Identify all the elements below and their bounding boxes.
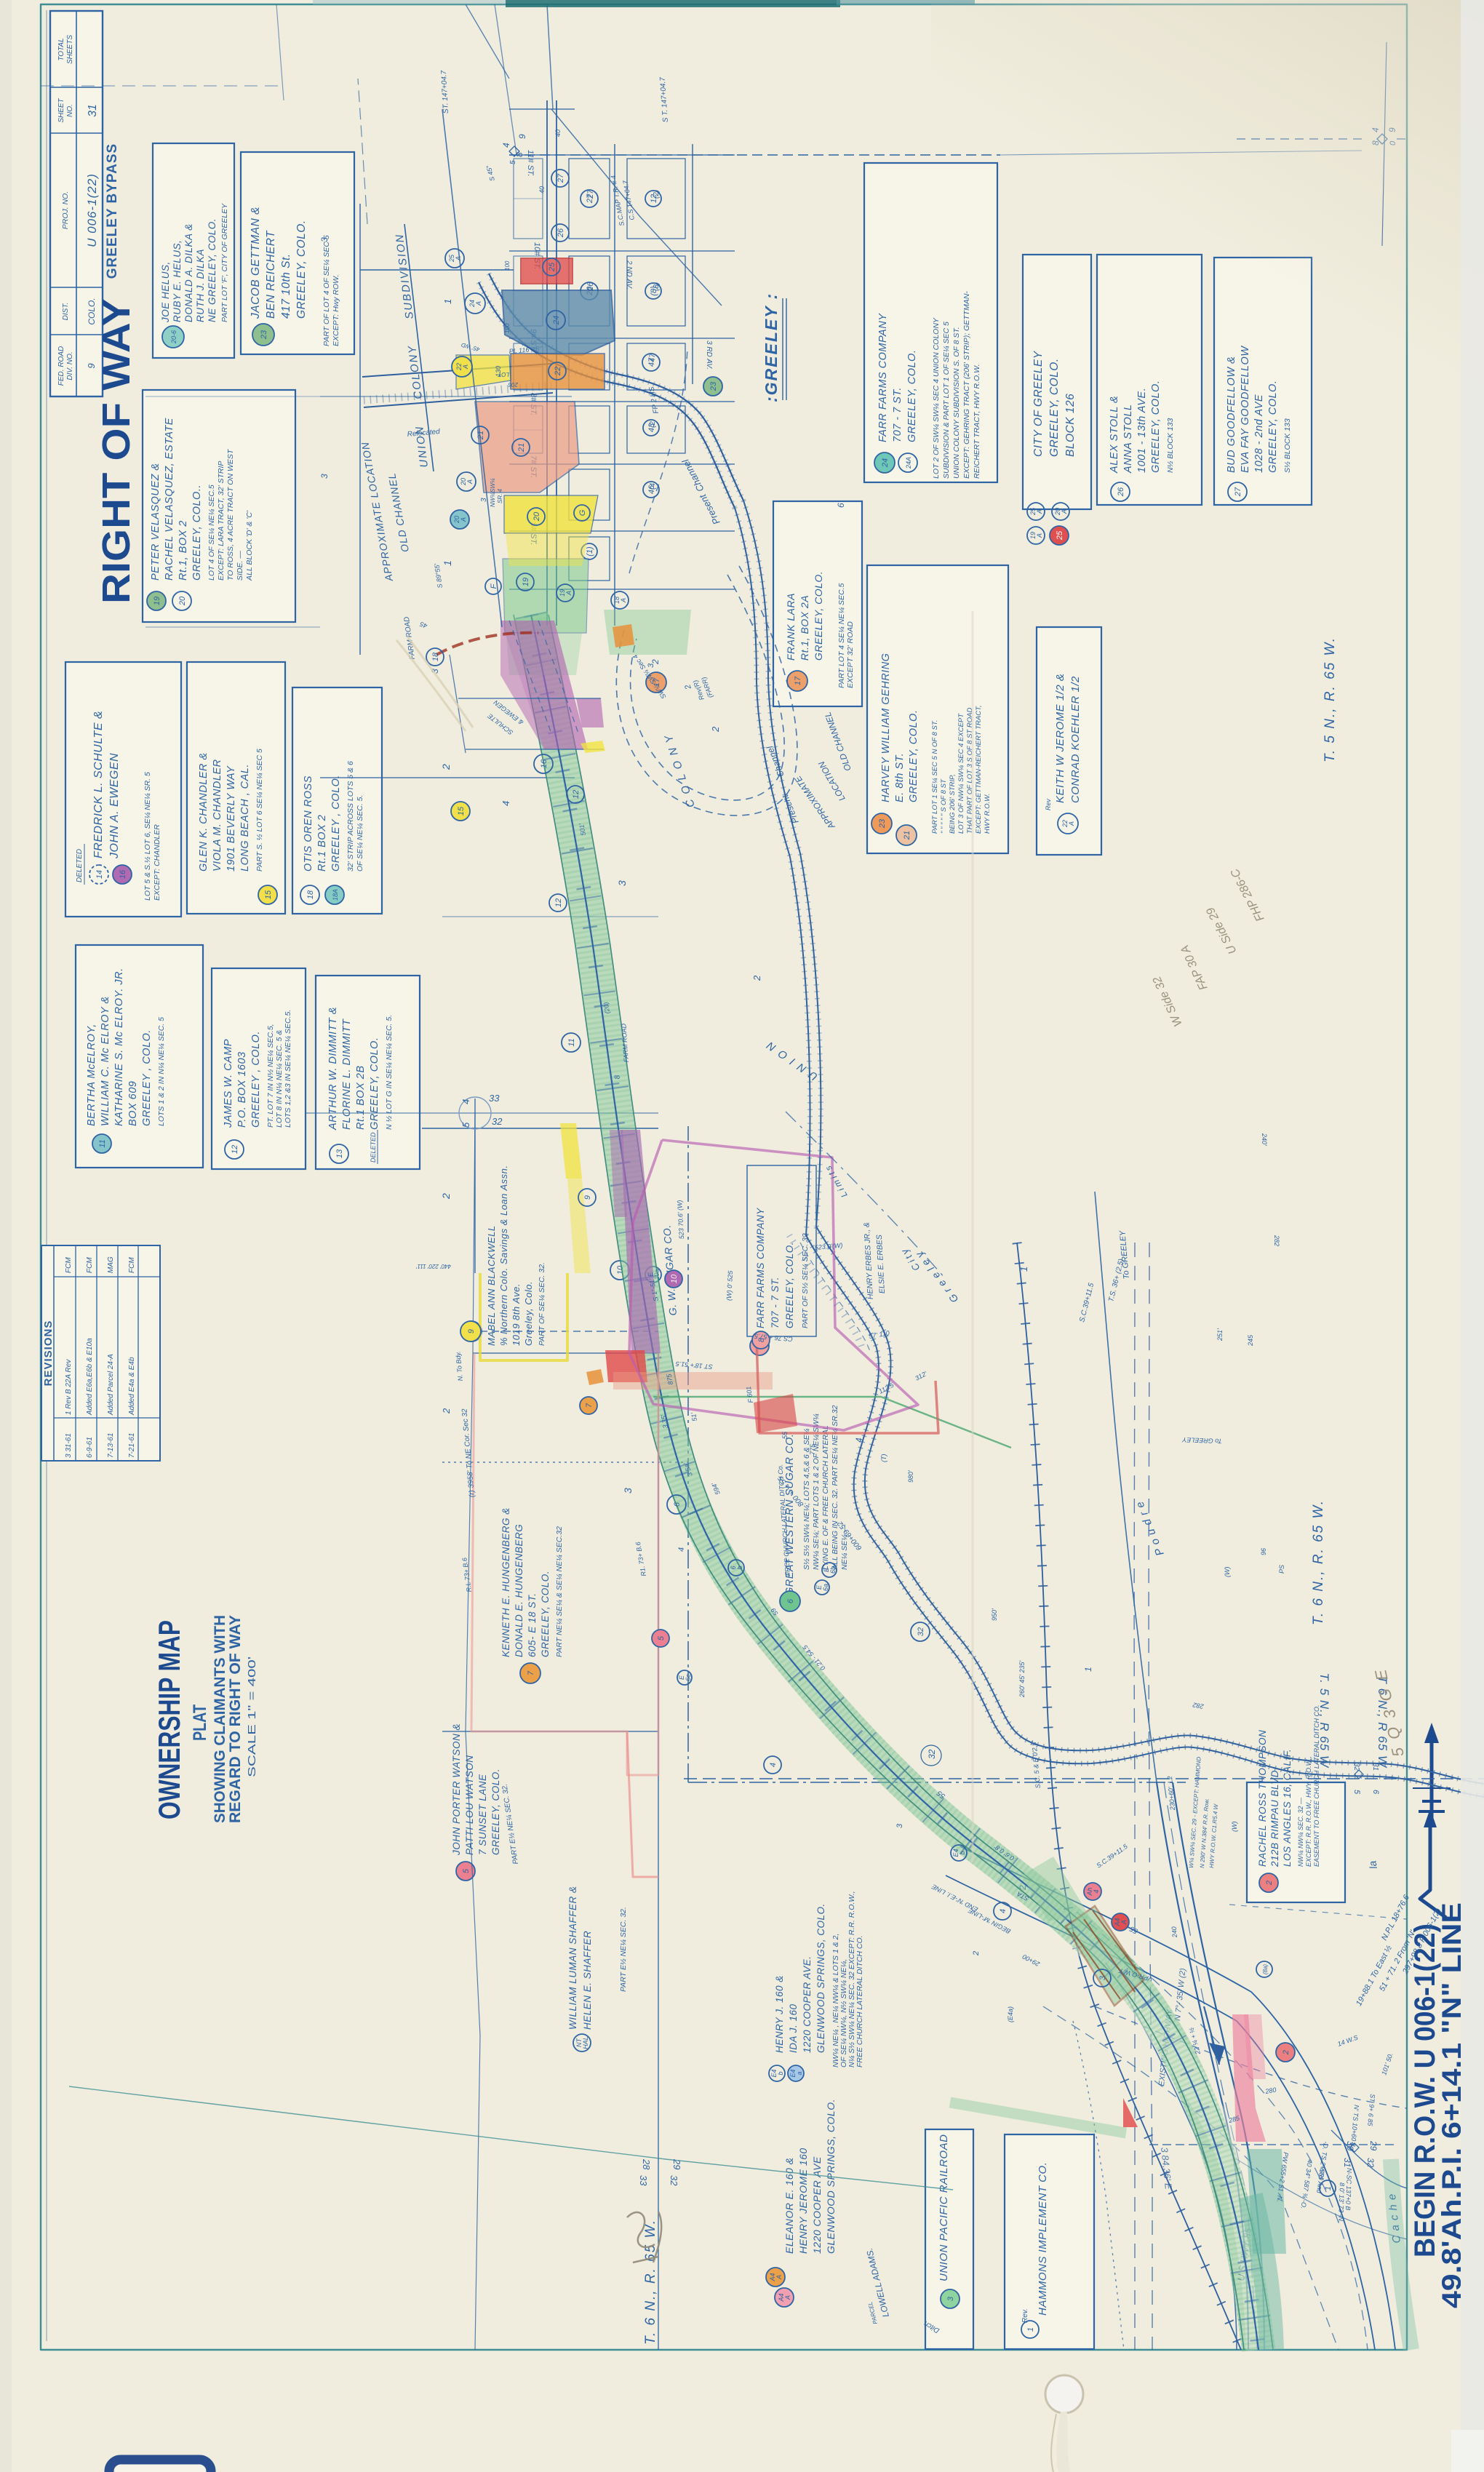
svg-text:9: 9 [517,134,527,139]
svg-text:33: 33 [638,2175,649,2186]
svg-text:NW¼ NW¼ SEC. 32 —: NW¼ NW¼ SEC. 32 — [1297,1797,1304,1867]
svg-text:15: 15 [264,890,273,899]
svg-text:32: 32 [1365,2158,1376,2168]
svg-text:20: 20 [178,596,187,606]
svg-text:PROJ. NO.: PROJ. NO. [61,191,70,230]
svg-text:GREELEY, COLO..: GREELEY, COLO.. [191,485,203,581]
svg-text:SHEETS: SHEETS [66,35,74,64]
svg-text:21: 21 [476,431,485,440]
svg-text:JOHN A. EWEGEN: JOHN A. EWEGEN [108,753,121,859]
svg-text:47: 47 [647,357,656,367]
svg-text:24: 24 [552,316,561,325]
svg-text:Rev: Rev [1045,798,1052,810]
svg-text:LOT 5 & S.½ LOT 6, SE¼ NE¼ SR.: LOT 5 & S.½ LOT 6, SE¼ NE¼ SR. 5 [143,772,152,901]
svg-text:1220 COOPER AVE.: 1220 COOPER AVE. [802,1955,813,2053]
svg-text:U 006-1(22): U 006-1(22) [85,173,99,247]
svg-text:Rt.1, BOX 2A: Rt.1, BOX 2A [799,595,810,661]
svg-text:27: 27 [586,194,594,204]
svg-text:HELEN E. SHAFFER: HELEN E. SHAFFER [582,1931,593,2030]
svg-text:18: 18 [431,652,440,661]
svg-text:980': 980' [907,1470,914,1483]
svg-text:206: 206 [508,381,519,388]
svg-text:2: 2 [1265,1881,1274,1886]
svg-text:4: 4 [460,1099,471,1104]
svg-text:5: 5 [657,1635,666,1640]
svg-text:GREELEY, COLO.: GREELEY, COLO. [490,1769,501,1855]
svg-text:(1): (1) [586,546,594,557]
svg-text:6: 6 [673,1502,682,1507]
svg-text:KEITH W JEROME 1/2 &: KEITH W JEROME 1/2 & [1054,674,1066,803]
svg-text:NW¼SW¼: NW¼SW¼ [490,478,496,507]
svg-text:26: 26 [1117,487,1125,497]
svg-text:SR. 4: SR. 4 [497,488,503,503]
svg-text:20: 20 [532,511,541,522]
svg-text:5: 5 [462,1868,471,1873]
svg-text:43: 43 [647,423,656,432]
svg-text:GLEN K. CHANDLER &: GLEN K. CHANDLER & [198,752,210,872]
svg-text:1: 1 [442,299,453,304]
svg-text:SHOWING CLAIMANTS WITH: SHOWING CLAIMANTS WITH [212,1615,228,1823]
svg-text:WILLIAM LUMAN SHAFFER &: WILLIAM LUMAN SHAFFER & [567,1886,578,2030]
svg-text:A: A [455,256,462,261]
svg-text:NE GREELEY, COLO.: NE GREELEY, COLO. [207,218,218,322]
svg-text:TO ROSS, 4 ACRE TRACT ON WEST: TO ROSS, 4 ACRE TRACT ON WEST [226,448,235,581]
svg-text:A: A [1068,821,1075,826]
svg-text:PART LOT 4 SE¼ NE¼ SEC.5: PART LOT 4 SE¼ NE¼ SEC.5 [837,583,846,688]
svg-text:3: 3 [319,237,330,242]
svg-text:251': 251' [1216,1328,1224,1341]
svg-text:32: 32 [1352,1763,1360,1771]
svg-text:REVISIONS: REVISIONS [42,1320,55,1387]
svg-text:6a: 6a [822,1584,829,1591]
svg-text:NW¼ SE¼; PART LOTS 1 & 2 OF NE: NW¼ SE¼; PART LOTS 1 & 2 OF NE¼ SW¼ [812,1414,821,1570]
svg-text:EXCEPT: GETTMAN-REICHERT TRACT: EXCEPT: GETTMAN-REICHERT TRACT, [975,705,983,834]
svg-text:11: 11 [567,1038,576,1046]
svg-text:HENRY J. 160 &: HENRY J. 160 & [774,1975,785,2053]
svg-text:PART LOT 'F', CITY OF GREELEY: PART LOT 'F', CITY OF GREELEY [220,203,229,322]
svg-text:100: 100 [504,260,511,271]
svg-text:10: 10 [670,1274,679,1283]
svg-text:b: b [959,1851,966,1854]
svg-text:EXCEPT: Hwy ROW.: EXCEPT: Hwy ROW. [332,274,340,346]
svg-text:N½ BLOCK 133: N½ BLOCK 133 [1166,418,1175,473]
svg-text:6c: 6c [685,1674,692,1681]
svg-text:FCM: FCM [65,1257,73,1273]
svg-text:32: 32 [917,1627,925,1636]
svg-text:T. 5 N., R. 65 W.: T. 5 N., R. 65 W. [1323,637,1338,762]
svg-text:b: b [736,1566,743,1569]
svg-text:DELETED: DELETED [370,1132,377,1163]
svg-text:PART E½ NE¼ SEC. 32.: PART E½ NE¼ SEC. 32. [619,1907,628,1992]
svg-text:12: 12 [572,790,581,799]
svg-text:212B RIMPAU BLVD.: 212B RIMPAU BLVD. [1269,1767,1280,1867]
svg-text:HAL: HAL [582,2036,589,2049]
svg-text:(T): (T) [880,1454,887,1463]
svg-text:5: 5 [460,1122,471,1128]
svg-text:Added E4a & E4b: Added E4a & E4b [128,1357,136,1416]
svg-text:28: 28 [641,2158,652,2170]
svg-text:OWNERSHIP MAP: OWNERSHIP MAP [152,1620,186,1819]
svg-text:To GREELEY: To GREELEY [1181,1436,1222,1445]
svg-text:13: 13 [335,1149,344,1158]
svg-text:G: G [578,509,587,516]
svg-text:" " " " " S OF 8 ST: " " " " " S OF 8 ST [940,778,948,834]
svg-text:A: A [1061,509,1068,514]
svg-text:LOT: LOT [497,371,509,378]
svg-text:T. 5 N., R 65 W: T. 5 N., R 65 W [1317,1672,1331,1769]
svg-text:PETER VELASQUEZ &: PETER VELASQUEZ & [150,463,161,581]
svg-text::GREELEY :: :GREELEY : [762,292,781,402]
svg-text:25: 25 [548,262,556,272]
svg-text:HWY R.O.W.: HWY R.O.W. [984,794,992,834]
svg-text:2: 2 [710,726,721,733]
svg-text:GREELEY BYPASS: GREELEY BYPASS [105,143,120,279]
svg-text:9: 9 [467,1329,476,1333]
svg-text:REGARD TO RIGHT OF WAY: REGARD TO RIGHT OF WAY [227,1615,244,1823]
svg-text:BEING 206' STRIP,: BEING 206' STRIP, [949,774,957,834]
svg-text:2: 2 [440,764,452,770]
svg-text:JOE HELUS,: JOE HELUS, [160,261,171,323]
svg-text:6-9-61: 6-9-61 [86,1437,94,1458]
svg-text:LOS ANGLES 16, CALIF.: LOS ANGLES 16, CALIF. [1282,1749,1293,1867]
svg-text:NO.: NO. [66,104,74,117]
svg-text:ALL BLOCK 'D' & 'C': ALL BLOCK 'D' & 'C' [245,510,254,581]
svg-text:LOTS 1,2 &3 IN SE¼ NE¼ SEC.5.: LOTS 1,2 &3 IN SE¼ NE¼ SEC.5. [284,1010,292,1128]
svg-text:11: 11 [98,1139,107,1147]
svg-text:7: 7 [527,1670,535,1675]
svg-text:VIOLA M. CHANDLER: VIOLA M. CHANDLER [212,759,223,872]
svg-text:CONRAD KOEHLER 1/2: CONRAD KOEHLER 1/2 [1069,676,1082,803]
svg-text:40: 40 [538,186,546,194]
svg-text:18A: 18A [332,889,339,901]
svg-text:PT. LOT 7 IN N½ NE¼ SEC.5,: PT. LOT 7 IN N½ NE¼ SEC.5, [266,1024,275,1128]
svg-text:T. 6 N., R. 65 W.: T. 6 N., R. 65 W. [643,2219,658,2345]
svg-text:LOTS 1 & 2 IN N¼ NE¼ SEC. 5: LOTS 1 & 2 IN N¼ NE¼ SEC. 5 [157,1017,166,1126]
svg-text:JAMES W. CAMP: JAMES W. CAMP [223,1039,234,1128]
svg-text:33: 33 [489,1093,500,1104]
svg-text:FREE CHURCH LATERAL DITCH CO.: FREE CHURCH LATERAL DITCH CO. [855,1935,864,2068]
svg-text:PART OF S½ SE¼ SEC. 32: PART OF S½ SE¼ SEC. 32 [801,1233,810,1328]
svg-text:Added E6a,E6b & E10a: Added E6a,E6b & E10a [86,1338,94,1416]
svg-text:1: 1 [1083,1667,1093,1672]
svg-text:16: 16 [540,759,548,768]
svg-text:(W): (W) [1231,1822,1238,1833]
svg-text:WILLIAM C. Mc ELROY &: WILLIAM C. Mc ELROY & [100,996,111,1126]
svg-text:UNION PACIFIC RAILROAD: UNION PACIFIC RAILROAD [938,2134,950,2281]
svg-text:SIDE. —: SIDE. — [236,551,244,581]
svg-text:T. 6 N., R. 65 W.: T. 6 N., R. 65 W. [1311,1499,1326,1625]
svg-text:b: b [777,2071,784,2075]
svg-text:18: 18 [306,890,315,899]
svg-text:(E4a): (E4a) [1007,2006,1014,2022]
svg-text:A: A [565,591,573,596]
svg-text:PLAT: PLAT [190,1705,210,1741]
svg-text:707 - 7 ST.: 707 - 7 ST. [770,1277,781,1328]
svg-text:46: 46 [647,485,656,494]
svg-text:Rt.1 BOX 2B: Rt.1 BOX 2B [355,1065,367,1130]
svg-text:16: 16 [119,869,127,879]
svg-text:GREELEY, COLO.: GREELEY, COLO. [813,571,824,661]
svg-text:23: 23 [878,818,887,829]
svg-text:1220 COOPER AVE: 1220 COOPER AVE [811,2156,823,2254]
svg-text:14: 14 [95,870,104,879]
svg-text:GREELEY, COLO.: GREELEY, COLO. [369,1037,380,1130]
svg-text:25: 25 [1056,530,1064,541]
svg-text:a: a [796,2071,803,2075]
svg-text:21: 21 [517,443,526,452]
svg-text:6: 6 [786,1598,795,1603]
svg-text:3: 3 [616,880,628,886]
svg-text:Greeley, Colo.: Greeley, Colo. [523,1281,534,1346]
svg-text:4: 4 [769,1763,778,1767]
svg-text:HENRY JEROME 160: HENRY JEROME 160 [797,2148,809,2254]
svg-text:GREELEY , COLO.: GREELEY , COLO. [250,1031,262,1128]
svg-text:PART OF LOT 4 OF SE¼ SEC 5: PART OF LOT 4 OF SE¼ SEC 5 [322,235,331,346]
svg-text:19: 19 [522,578,530,586]
svg-text:FRANK LARA: FRANK LARA [785,593,797,661]
svg-text:DONALD E. HUNGENBERG: DONALD E. HUNGENBERG [514,1524,524,1657]
svg-text:KENNETH E. HUNGENBERG &: KENNETH E. HUNGENBERG & [500,1507,511,1657]
svg-text:3 31-61: 3 31-61 [65,1433,73,1458]
svg-text:7-21-61: 7-21-61 [128,1433,136,1458]
svg-text:27: 27 [1234,487,1242,497]
svg-text:282: 282 [1273,1235,1280,1246]
svg-text:29: 29 [671,2158,682,2169]
svg-text:P.O. BOX 1603: P.O. BOX 1603 [236,1051,248,1128]
svg-text:6: 6 [1371,1790,1380,1795]
svg-text:LOT 4 OF SE¼ NE¼ SEC.5: LOT 4 OF SE¼ NE¼ SEC.5 [207,485,216,581]
svg-text:DELETED: DELETED [76,849,84,882]
svg-text:PS: PS [1278,1565,1285,1574]
svg-text:3 RD AV.: 3 RD AV. [705,340,713,370]
svg-text:EXCEPT 32' ROAD: EXCEPT 32' ROAD [846,621,855,688]
svg-text:GREELEY, COLO.: GREELEY, COLO. [908,710,919,802]
svg-text:21: 21 [903,831,911,840]
svg-text:GREELEY, COLO.: GREELEY, COLO. [295,220,308,319]
svg-text:245: 245 [1247,1334,1254,1347]
svg-text:EXCEPT: LARA TRACT, 32' STRIP: EXCEPT: LARA TRACT, 32' STRIP [217,461,226,581]
svg-text:HAMMONS IMPLEMENT CO.: HAMMONS IMPLEMENT CO. [1037,2162,1049,2316]
svg-text:605- E 18 ST.: 605- E 18 ST. [527,1592,538,1657]
svg-text:440' 220' 111': 440' 220' 111' [416,1263,451,1269]
svg-text:MAG: MAG [107,1256,115,1273]
svg-text:6b: 6b [829,1566,837,1574]
svg-text:PART OF SE¼ SEC. 32.: PART OF SE¼ SEC. 32. [538,1262,546,1346]
svg-text:40: 40 [554,129,562,137]
svg-text:PATTI LOU WATSON: PATTI LOU WATSON [464,1755,475,1855]
svg-text:BEN REICHERT: BEN REICHERT [265,230,277,319]
svg-text:Rt.1 BOX 2: Rt.1 BOX 2 [316,815,328,872]
svg-text:4: 4 [501,143,511,148]
svg-text:3: 3 [1098,1975,1107,1980]
svg-text:S½ BLOCK 133: S½ BLOCK 133 [1283,418,1292,473]
svg-text:% Northern Colo. Savings & Loa: % Northern Colo. Savings & Loan Assn. [498,1165,509,1346]
svg-text:A: A [475,301,482,306]
svg-text:N ½ LOT G IN SE¼ NE¼ SEC. 5.: N ½ LOT G IN SE¼ NE¼ SEC. 5. [385,1015,394,1130]
svg-text:2: 2 [440,1193,452,1200]
svg-text:ARTHUR W. DIMMITT &: ARTHUR W. DIMMITT & [327,1007,339,1131]
svg-text:15: 15 [457,806,466,816]
svg-text:FCM: FCM [86,1257,94,1273]
svg-text:TOTAL: TOTAL [57,38,65,60]
svg-text:3: 3 [647,663,655,668]
svg-text:RUBY E. HELUS,: RUBY E. HELUS, [172,240,183,322]
svg-text:32: 32 [492,1116,503,1127]
svg-text:GREELEY, COLO.: GREELEY, COLO. [540,1571,551,1657]
svg-text:950': 950' [991,1608,998,1621]
svg-text:23: 23 [709,381,718,391]
svg-text:775: 775 [809,1443,816,1455]
svg-text:1901 BEVERLY WAY: 1901 BEVERLY WAY [226,765,237,872]
svg-text:27: 27 [556,173,565,183]
svg-text:LOT 8 IN N¼ NE¼ SEC. 5 &: LOT 8 IN N¼ NE¼ SEC. 5 & [275,1030,284,1128]
svg-text:9: 9 [583,1195,592,1200]
svg-text:GREELEY , COLO.: GREELEY , COLO. [141,1029,153,1126]
svg-text:1: 1 [1324,2186,1333,2190]
svg-text:A: A [462,364,469,370]
svg-text:240': 240' [1261,1133,1268,1146]
svg-text:DIV. NO.: DIV. NO. [66,351,74,380]
svg-text:E. 8th ST.: E. 8th ST. [894,753,906,802]
svg-text:7 SUNSET LANE: 7 SUNSET LANE [477,1774,488,1855]
svg-text:96: 96 [1260,1548,1267,1555]
svg-text:4: 4 [500,801,511,806]
svg-text:Added Parcel 24-A: Added Parcel 24-A [107,1354,115,1416]
svg-text:MABEL ANN BLACKWELL: MABEL ANN BLACKWELL [486,1225,497,1346]
svg-text:3: 3 [622,1488,634,1494]
svg-text:51': 51' [690,1412,698,1422]
svg-text:PART LOT 1 SE¼ SEC 5 N OF 8 ST: PART LOT 1 SE¼ SEC 5 N OF 8 ST. [931,720,939,834]
svg-text:24A: 24A [905,457,912,469]
svg-text:707 - 7 ST.: 707 - 7 ST. [892,387,903,442]
svg-text:DIST.: DIST. [62,303,70,321]
svg-text:FREDRICK L. SCHULTE &: FREDRICK L. SCHULTE & [92,711,105,858]
svg-text:17: 17 [794,676,802,685]
svg-text:26: 26 [556,228,565,238]
svg-text:24: 24 [881,458,890,468]
svg-text:A: A [784,2295,791,2300]
svg-text:12: 12 [554,898,563,907]
svg-text:A: A [1120,1920,1128,1925]
svg-text:GREELEY, COLO.: GREELEY, COLO. [784,1242,795,1328]
svg-text:PART S. ½ LOT 6 SE¼ NE¼ SEC 5: PART S. ½ LOT 6 SE¼ NE¼ SEC 5 [255,749,264,872]
svg-text:2: 2 [1282,2050,1290,2055]
svg-text:A: A [466,479,474,485]
svg-text:JOHN PORTER WATSON &: JOHN PORTER WATSON & [451,1723,462,1856]
svg-text:12: 12 [231,1145,239,1154]
svg-text:19: 19 [153,597,161,605]
svg-text:LONG BEACH , CAL.: LONG BEACH , CAL. [239,764,251,872]
svg-text:GREELEY , COLO.: GREELEY , COLO. [330,775,342,872]
svg-text:260' 45' 235': 260' 45' 235' [1018,1661,1026,1698]
svg-text:RACHEL VELASQUEZ, ESTATE: RACHEL VELASQUEZ, ESTATE [164,418,175,581]
svg-text:OTIS OREN ROSS: OTIS OREN ROSS [303,776,314,872]
svg-text:IDA J. 160: IDA J. 160 [788,2003,799,2053]
svg-text:A: A [620,598,627,603]
svg-text:1: 1 [442,560,453,566]
svg-text:240: 240 [1170,1926,1178,1939]
svg-text:KATHARINE S. Mc ELROY. JR.: KATHARINE S. Mc ELROY. JR. [113,968,125,1126]
svg-text:A: A [1036,509,1043,514]
svg-text:1019 8th Ave.: 1019 8th Ave. [511,1283,522,1346]
svg-text:12: 12 [650,194,658,203]
svg-text:2: 2 [972,1951,981,1956]
svg-text:EXCEPT: CHANDLER: EXCEPT: CHANDLER [153,824,161,901]
svg-text:A: A [1036,533,1043,538]
svg-text:ANNA STOLL: ANNA STOLL [1122,404,1134,474]
svg-text:1 Rev B 22A Rev: 1 Rev B 22A Rev [65,1359,73,1415]
svg-text:BERTHA McELROY,: BERTHA McELROY, [86,1024,97,1126]
svg-text:23: 23 [260,330,268,340]
svg-text:SHEET: SHEET [57,97,65,122]
svg-text:5: 5 [1352,1790,1361,1795]
svg-text:100: 100 [504,323,511,333]
svg-text:8 0' 13' 73 -N.: 8 0' 13' 73 -N. [1337,2182,1346,2223]
svg-text:55: 55 [781,1431,789,1439]
svg-text:GREELEY, COLO.: GREELEY, COLO. [906,350,918,442]
svg-text:11# ST.: 11# ST. [526,150,535,177]
svg-text:PART NE¼ SE¼ & SE¼ NE¼ SEC.32: PART NE¼ SE¼ & SE¼ NE¼ SEC.32 [555,1526,564,1657]
svg-text:FED. ROAD: FED. ROAD [57,346,65,386]
svg-text:2: 2 [441,1408,452,1414]
svg-text:Rt.1, BOX 2: Rt.1, BOX 2 [177,520,189,581]
svg-text:LOT 3 OF NW¼ SW¼ SEC 4 EXCEPT: LOT 3 OF NW¼ SW¼ SEC 4 EXCEPT [957,713,965,834]
svg-text:GLENWOOD SPRINGS, COLO.: GLENWOOD SPRINGS, COLO. [815,1903,826,2053]
svg-text:6: 6 [836,503,846,508]
svg-text:OF SE¼ NE¼ SEC. 5.: OF SE¼ NE¼ SEC. 5. [356,795,364,872]
svg-text:32: 32 [669,2175,679,2186]
svg-text:(8a): (8a) [1262,1964,1269,1975]
svg-text:(W): (W) [1224,1567,1231,1578]
svg-text:FARR FARMS COMPANY: FARR FARMS COMPANY [755,1208,766,1328]
svg-text:A: A [460,517,467,522]
svg-text:FARR FARMS COMPANY: FARR FARMS COMPANY [877,313,889,442]
svg-text:4: 4 [999,1909,1008,1913]
svg-text:BOX 609: BOX 609 [127,1081,139,1126]
svg-text:RIGHT OF WAY: RIGHT OF WAY [95,298,138,604]
svg-text:LYING E. OF & FREE CHURCH LATE: LYING E. OF & FREE CHURCH LATERAL [821,1425,830,1570]
svg-text:FCM: FCM [128,1257,136,1273]
svg-text:20-6: 20-6 [170,330,177,344]
svg-text:3: 3 [895,1823,904,1828]
svg-text:4: 4 [677,1547,686,1552]
svg-text:4: 4 [1093,1889,1100,1893]
svg-text:22: 22 [554,367,562,376]
svg-text:DONALD A. DILKA &: DONALD A. DILKA & [183,223,194,322]
svg-text:JACOB GETTMAN &: JACOB GETTMAN & [250,207,262,319]
svg-text:29: 29 [1368,2140,1379,2151]
svg-text:3: 3 [319,474,330,479]
svg-text:2 ND AV.: 2 ND AV. [625,260,633,290]
svg-text:3: 3 [946,2296,955,2301]
svg-text:A: A [775,2275,783,2280]
svg-text:32: 32 [927,1749,937,1759]
svg-text:7: 7 [585,1403,594,1408]
svg-text:HARVEY WILLIAM GEHRING: HARVEY WILLIAM GEHRING [880,653,892,802]
svg-text:RUTH J. DILKA: RUTH J. DILKA [195,249,206,322]
svg-text:417 10th St.: 417 10th St. [280,253,292,319]
svg-text:1: 1 [1026,2327,1035,2332]
svg-text:2: 2 [751,975,762,981]
svg-text:(8): (8) [650,286,658,296]
svg-text:7-13-61: 7-13-61 [107,1433,115,1458]
svg-text:31: 31 [87,104,99,117]
svg-text:N-SC 137+0 B: N-SC 137+0 B [1344,2168,1353,2211]
svg-text:SCALE 1" = 400': SCALE 1" = 400' [246,1656,258,1777]
